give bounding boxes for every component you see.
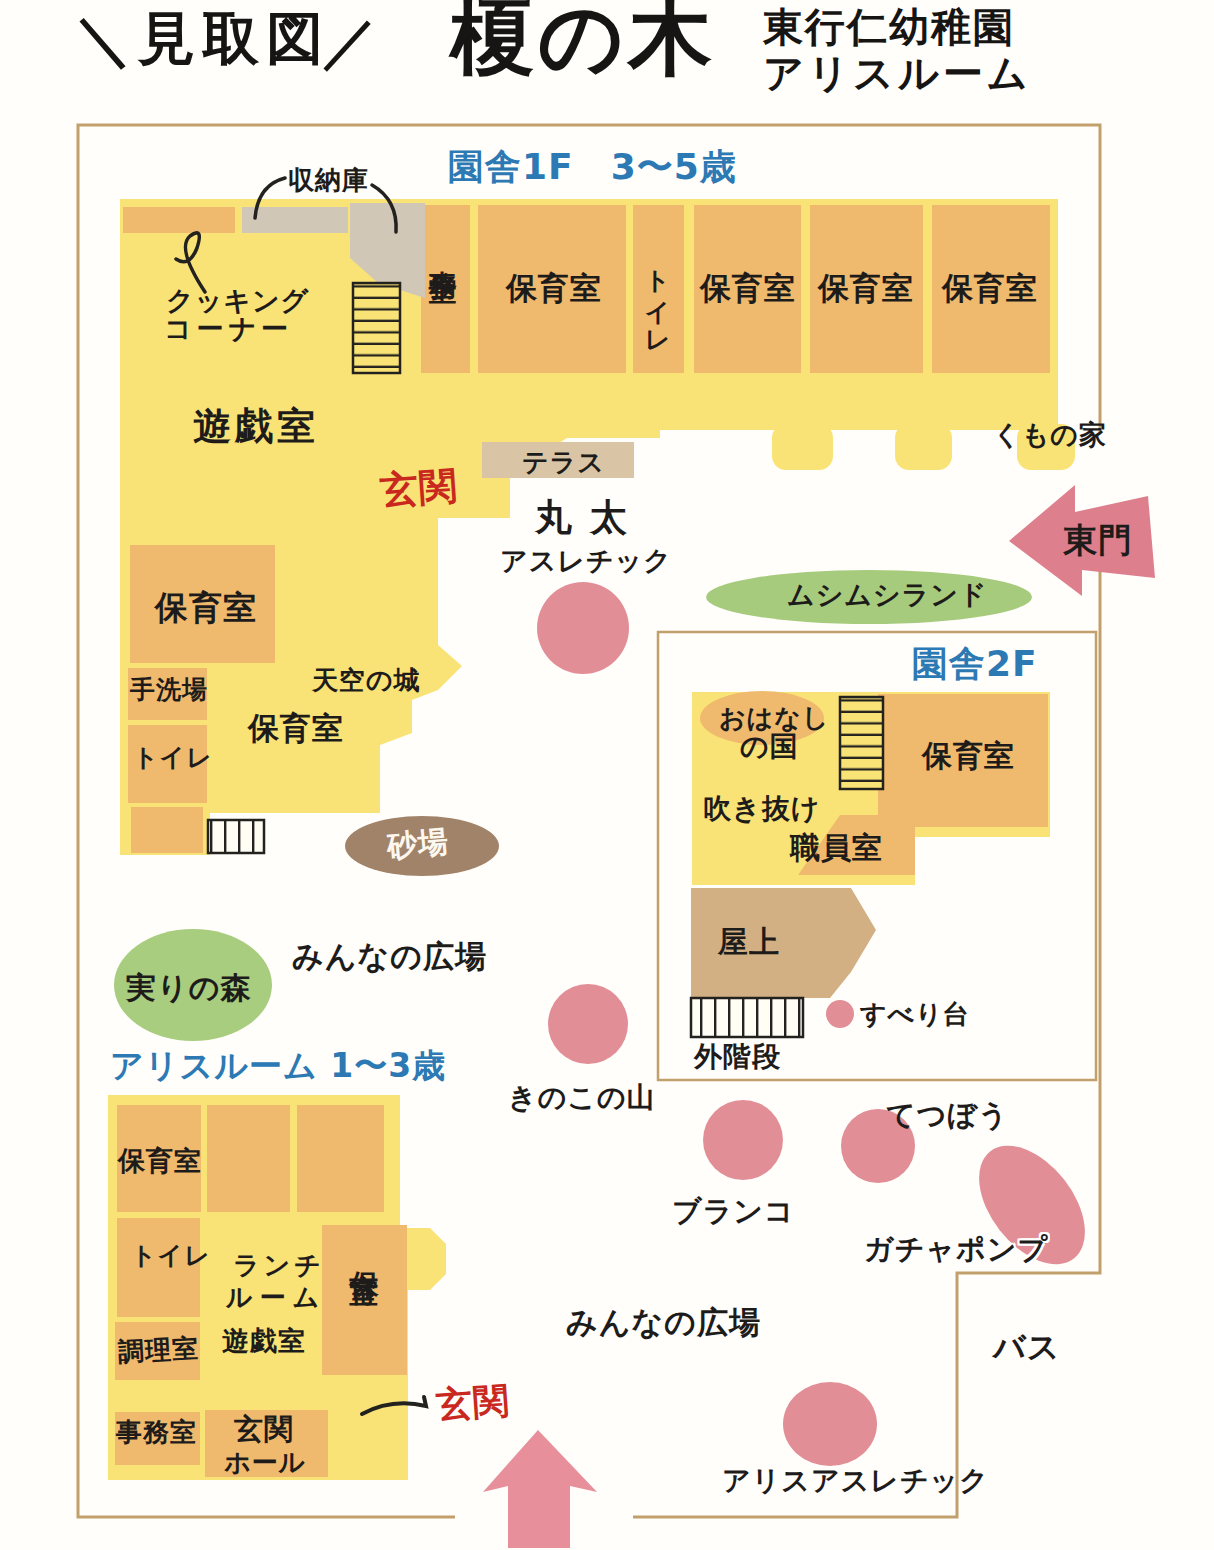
bus-label: バス [993,1330,1061,1365]
nursery-label: 保育室 [118,1146,202,1175]
mushroom-mountain-equipment [548,984,628,1064]
lunch-room-label: ランチ [233,1251,325,1279]
outdoor-stairs-label: 外階段 [694,1042,781,1072]
school-name: 東行仁幼稚園 [763,6,1015,49]
entrance-label-1f: 玄関 [379,465,460,511]
stairs-2f [840,697,883,789]
nursery-label: 保育室 [506,272,602,305]
section-label-2f: 園舎2F [912,645,1038,684]
swing-label: ブランコ [672,1196,795,1227]
alice-room-name: アリスルーム [763,52,1032,95]
log-athletic-label: 丸太 [535,498,645,538]
title-slash-left: ＼ [74,8,133,71]
outdoor-stairs-2f [691,998,803,1037]
terrace-label: テラス [522,448,605,476]
playroom-label-alice: 遊戯室 [222,1326,306,1355]
atrium-label: 吹き抜け [703,794,820,824]
sky-castle-label: 天空の城 [312,666,421,694]
storage-strip [242,207,348,233]
small-room [131,807,203,853]
spider-house-label: くもの家 [993,420,1107,449]
everyone-plaza-label: みんなの広場 [292,940,487,973]
title-slash-right: ／ [322,12,379,72]
kindergarten-site-map: ＼ 見取図 ／ 榎の木 東行仁幼稚園 アリスルーム 園舎1F 3〜5歳 園舎2F… [0,0,1214,1550]
stairs-1f [353,283,400,373]
rooftop-label: 屋上 [718,926,780,958]
kitchen-label: 調理室 [117,1334,199,1366]
alice-athletic-equipment [783,1382,877,1466]
fruit-forest-label: 実りの森 [126,972,251,1004]
slide-label: すべり台 [860,1000,970,1028]
office-room-1f [421,205,470,373]
toilet-label: トイレ [133,744,213,771]
exit-steps [208,820,264,853]
story-room-label: の国 [740,732,799,762]
nursery-label: 保育室 [922,740,1015,772]
south-entrance-arrow [483,1430,597,1548]
handwash-label: 手洗場 [130,676,208,703]
everyone-plaza-label: みんなの広場 [566,1306,761,1339]
room-strip [123,207,235,233]
section-label-alice: アリスルーム 1〜3歳 [110,1048,446,1084]
nursery-label: 保育室 [700,272,796,305]
room [297,1105,384,1212]
story-room-label: おはなし [719,704,829,732]
toilet-label: トイレ [131,1242,211,1269]
sandbox-label: 砂場 [386,825,451,863]
playroom-label-1f: 遊戯室 [193,406,319,447]
lunch-room-label: ルーム [226,1283,326,1311]
building-bump [895,424,952,470]
room [207,1105,290,1212]
east-gate-label: 東門 [1063,522,1133,559]
mushimushi-land-label: ムシムシランド [787,580,987,609]
office-label-alice: 事務室 [116,1418,197,1446]
mushroom-mountain-label: きのこの山 [508,1083,656,1113]
nursery-label-vertical: 保育室 [348,1248,379,1254]
gacha-pump-label: ガチャポンプ [864,1234,1048,1265]
page-title: 見取図 [138,8,330,70]
slide-equipment [826,1000,854,1028]
cooking-corner-label: コーナー [164,314,293,343]
building-bump [772,424,833,470]
storage-label: 収納庫 [288,166,369,194]
log-athletic-equipment [537,582,629,674]
cooking-corner-label: クッキング [166,286,309,315]
nursery-label: 保育室 [155,590,257,626]
nursery-label: 保育室 [248,712,344,745]
toilet-label: トイレ [644,252,671,343]
nursery-label: 保育室 [942,272,1038,305]
entrance-label-alice: 玄関 [435,1381,512,1425]
alice-athletic-label: アリスアスレチック [722,1466,989,1496]
entrance-hall-label: 玄関 [234,1414,294,1445]
office-label-1f: 事務室 [427,248,457,254]
staff-room-label: 職員室 [790,832,883,864]
nursery-label: 保育室 [818,272,914,305]
section-label-1f: 園舎1F 3〜5歳 [448,148,737,187]
iron-bar-label: てつぼう [886,1100,1009,1131]
log-athletic-label: アスレチック [500,546,672,575]
swing-equipment [703,1100,783,1180]
entrance-hall-label: ホール [224,1448,306,1476]
main-title: 榎の木 [450,0,716,83]
